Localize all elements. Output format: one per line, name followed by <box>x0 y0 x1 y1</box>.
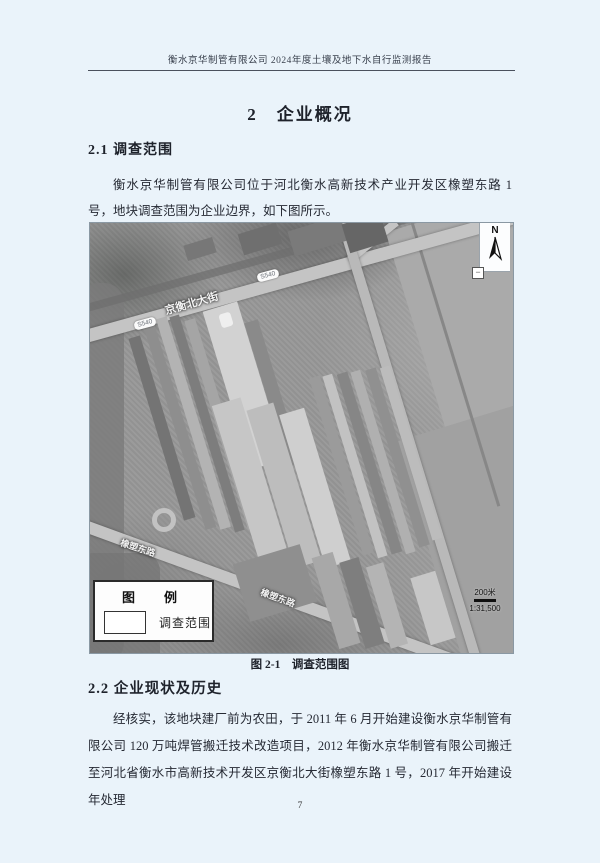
scale-ratio: 1:31,500 <box>456 604 514 613</box>
page-header: 衡水京华制管有限公司 2024年度土壤及地下水自行监测报告 <box>60 52 540 66</box>
chapter-title: 2 企业概况 <box>0 100 600 125</box>
legend-row: 调查范围 <box>104 611 212 634</box>
north-arrow: N <box>479 223 510 272</box>
document-page: 衡水京华制管有限公司 2024年度土壤及地下水自行监测报告 2 企业概况 2.1… <box>0 0 600 863</box>
map-roundabout <box>152 508 176 532</box>
section-heading-2-2: 2.2 企业现状及历史 <box>88 677 222 698</box>
legend-title: 图 例 <box>95 587 212 606</box>
map-legend: 图 例 调查范围 <box>93 580 214 642</box>
scale-bar-icon <box>474 599 496 602</box>
section-paragraph-2-1: 衡水京华制管有限公司位于河北衡水高新技术产业开发区橡塑东路 1 号，地块调查范围… <box>88 172 512 224</box>
section-heading-2-1: 2.1 调查范围 <box>88 139 173 159</box>
figure-caption: 图 2-1 调查范围图 <box>0 656 600 672</box>
scale-bar-label: 200米 <box>456 587 514 598</box>
survey-boundary-swatch <box>104 611 146 634</box>
survey-scope-map: 京衡北大街 S540 S540 橡塑东路 橡塑东路 N − 图 例 调查范围 2… <box>89 222 514 654</box>
north-label: N <box>480 225 510 236</box>
section-paragraph-2-2: 经核实，该地块建厂前为农田，于 2011 年 6 月开始建设衡水京华制管有限公司… <box>88 706 512 814</box>
map-building <box>287 222 347 256</box>
legend-item-label: 调查范围 <box>159 614 211 631</box>
page-number: 7 <box>0 801 600 811</box>
header-title: 衡水京华制管有限公司 2024年度土壤及地下水自行监测报告 <box>168 56 432 66</box>
map-building <box>183 237 216 261</box>
map-scale: 200米 1:31,500 <box>456 587 514 613</box>
zoom-out-icon: − <box>472 267 484 279</box>
north-arrow-icon <box>486 236 504 262</box>
header-divider <box>88 70 515 71</box>
